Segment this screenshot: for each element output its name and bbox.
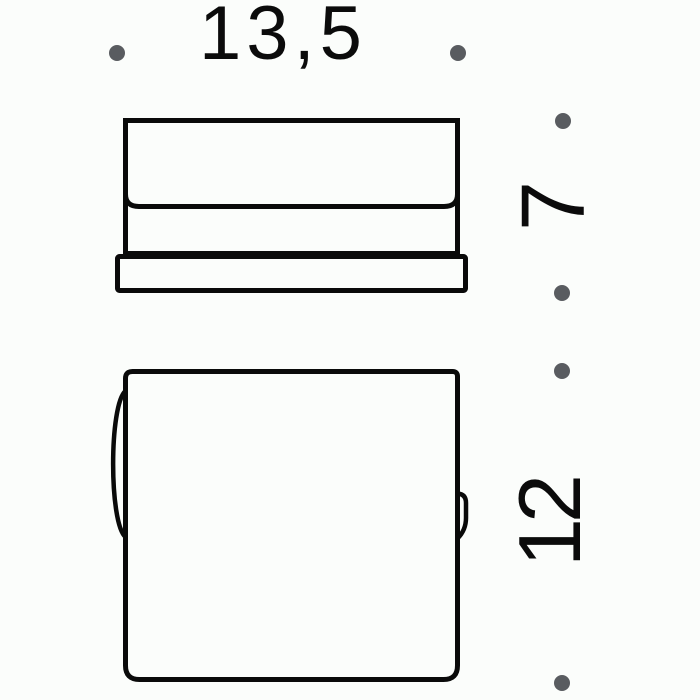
side-height-dimension-label: 7 [494, 146, 614, 266]
front-height-dimension-dot-bottom [554, 675, 570, 691]
front-height-dimension-dot-top [554, 363, 570, 379]
width-dimension-dot-left [109, 45, 125, 61]
front-view-outline [126, 372, 458, 680]
front-view [113, 372, 466, 680]
side-view-outline [126, 121, 458, 254]
width-dimension-dot-right [450, 45, 466, 61]
side-height-dimension-dot-top [555, 113, 571, 129]
side-view-cover-line [126, 194, 458, 207]
side-view-base-plate [118, 257, 466, 291]
drawing-sheet: 13,5 7 12 [0, 0, 700, 700]
side-view [118, 121, 466, 291]
front-height-dimension-label: 12 [470, 443, 630, 603]
width-dimension-label: 13,5 [140, 0, 426, 106]
side-height-dimension-dot-bottom [554, 285, 570, 301]
